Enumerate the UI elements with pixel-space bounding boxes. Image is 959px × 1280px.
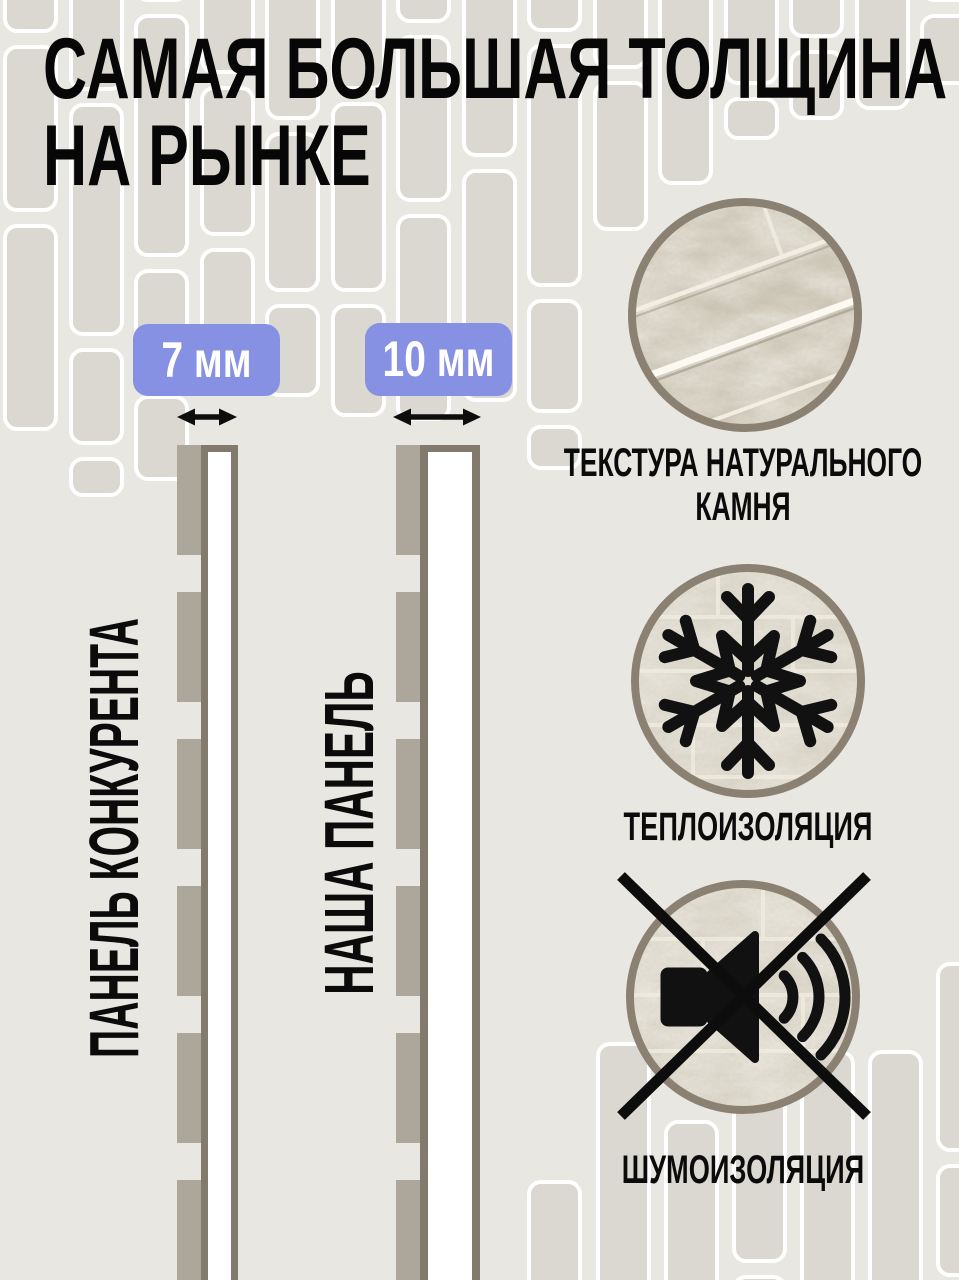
our-thickness-value: 10 мм [381, 323, 496, 395]
decorative-tile [664, 1120, 719, 1280]
width-arrow-icon [392, 404, 482, 430]
competitor-thickness-value: 7 мм [149, 324, 264, 396]
our-panel-name: НАША ПАНЕЛЬ [314, 593, 384, 1073]
decorative-tile [69, 348, 124, 445]
decorative-tile [527, 299, 582, 413]
competitor-panel-dashed-backing [177, 445, 203, 1280]
stone-texture-photo [620, 190, 870, 440]
page-title: САМАЯ БОЛЬШАЯ ТОЛЩИНА НА РЫНКЕ [43, 26, 947, 200]
title-line-2: НА РЫНКЕ [43, 108, 371, 204]
competitor-panel-cross-section [201, 445, 238, 1280]
width-arrow-icon [176, 404, 238, 430]
decorative-tile [396, 0, 451, 23]
our-thickness-badge: 10 мм [365, 323, 512, 396]
competitor-panel-name: ПАНЕЛЬ КОНКУРЕНТА [79, 614, 149, 1062]
muted-speaker-icon [618, 872, 868, 1122]
feature-label-thermal-insulation: ТЕПЛОИЗОЛЯЦИЯ [544, 805, 952, 849]
decorative-tile [527, 1180, 582, 1280]
title-line-1: САМАЯ БОЛЬШАЯ ТОЛЩИНА [43, 21, 947, 117]
decorative-tile [936, 962, 959, 1152]
feature-label-sound-insulation: ШУМОИЗОЛЯЦИЯ [539, 1148, 947, 1192]
decorative-tile [732, 1275, 787, 1280]
decorative-tile [69, 457, 124, 497]
our-panel-cross-section [420, 445, 480, 1280]
our-panel-dashed-backing [396, 445, 421, 1280]
competitor-thickness-badge: 7 мм [133, 324, 280, 396]
snowflake-icon [623, 556, 873, 806]
competitor-panel-core [208, 452, 231, 1280]
decorative-tile [920, 0, 959, 2]
feature-label-stone-texture: ТЕКСТУРА НАТУРАЛЬНОГО КАМНЯ [545, 441, 941, 529]
decorative-tile [134, 0, 189, 2]
our-panel-core [428, 452, 472, 1280]
decorative-tile [3, 224, 58, 431]
infographic-poster: САМАЯ БОЛЬШАЯ ТОЛЩИНА НА РЫНКЕ 7 мм 10 м… [0, 0, 959, 1280]
